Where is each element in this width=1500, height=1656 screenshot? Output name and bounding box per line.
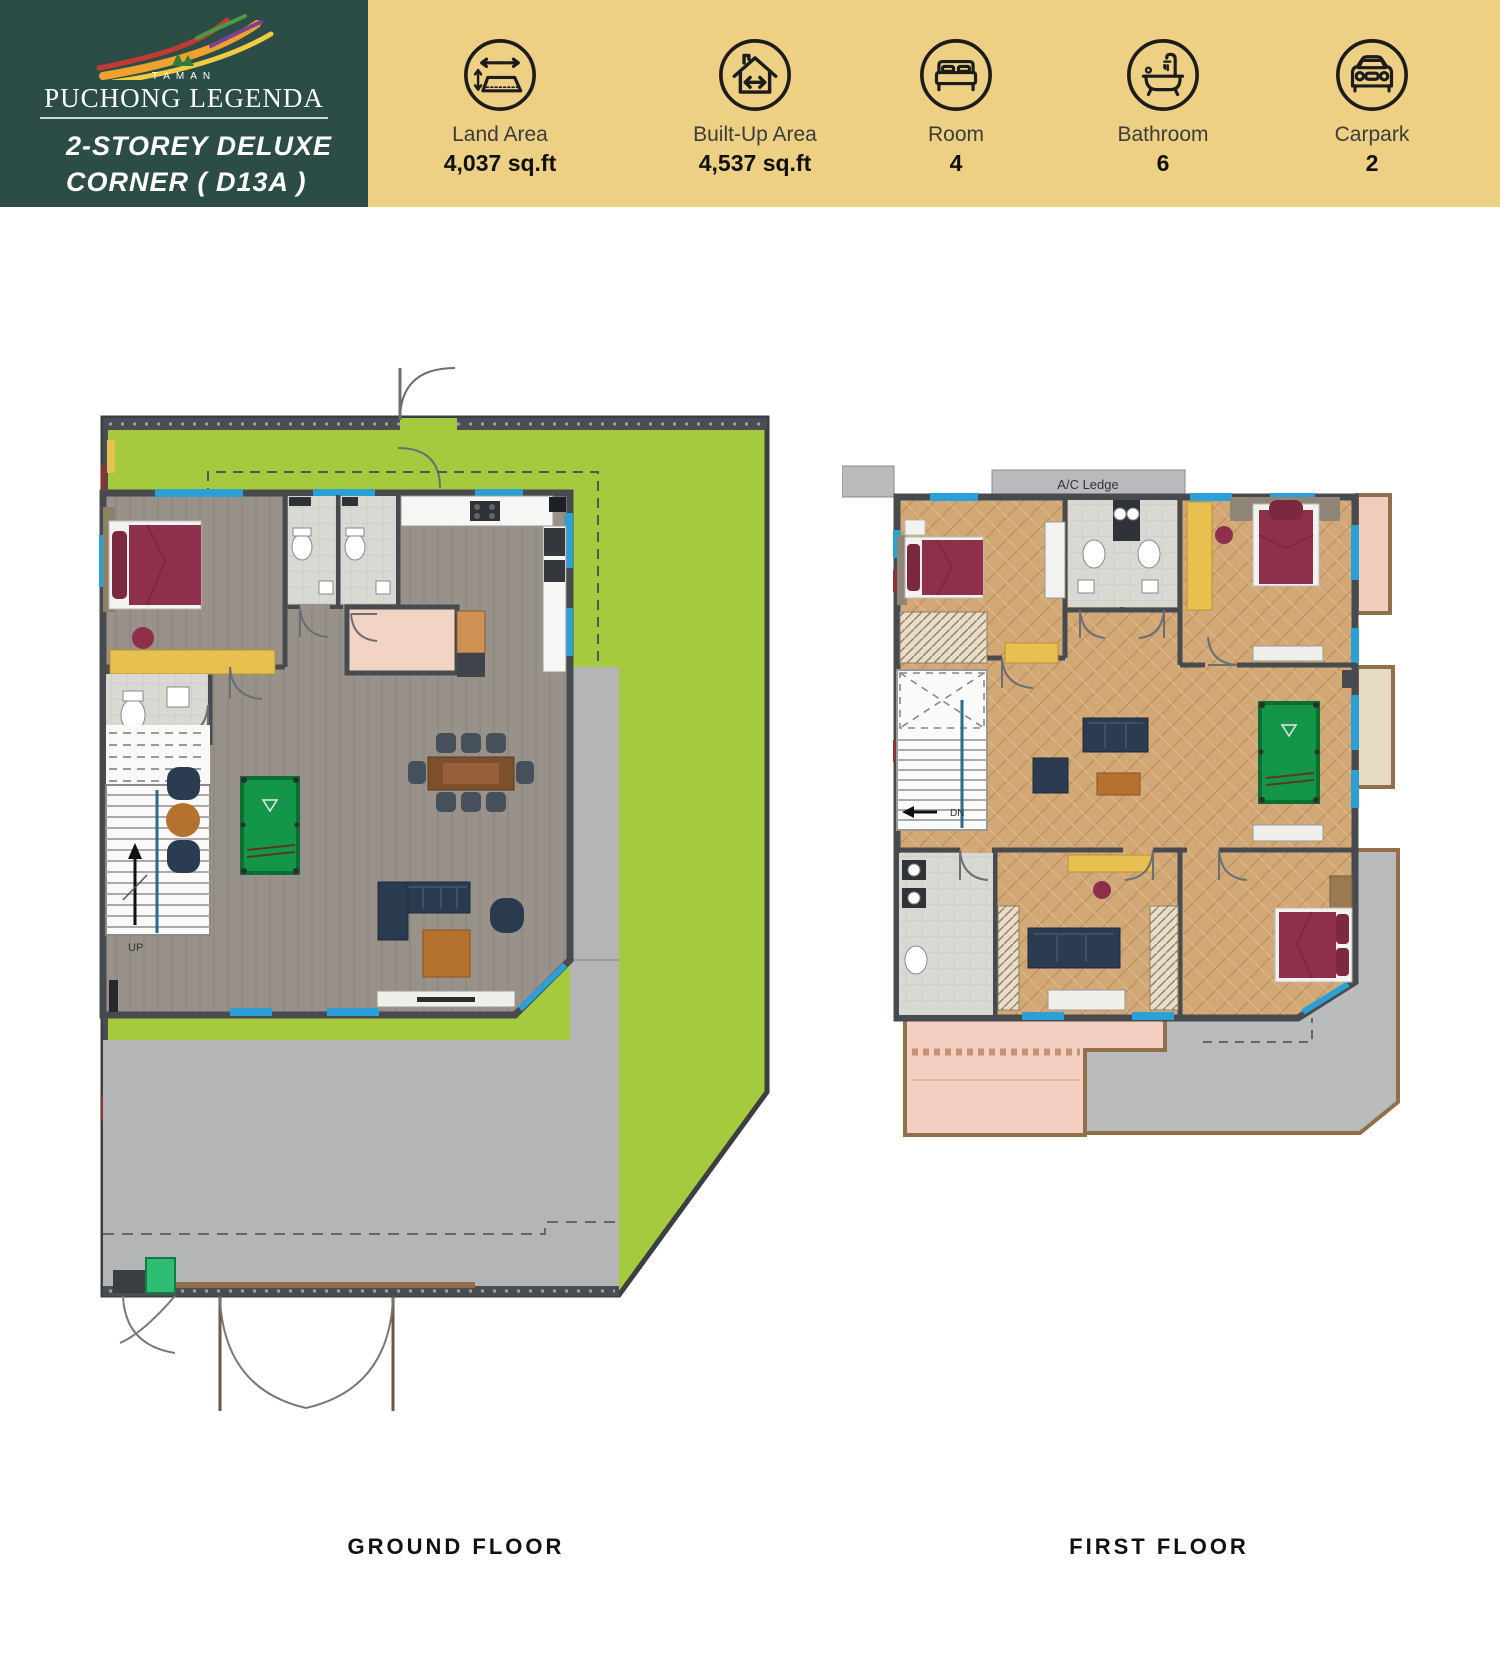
stat-label: Room [868, 123, 1044, 147]
side-door [109, 980, 118, 1012]
console-table [1068, 855, 1153, 872]
side-ledge [1357, 495, 1390, 613]
armchair [167, 840, 200, 873]
wardrobe [1187, 502, 1212, 610]
side-ledge [1357, 667, 1393, 787]
tv-console [1253, 825, 1323, 841]
stair-direction-label: UP [128, 942, 143, 954]
gate-post [107, 440, 115, 473]
gate-frame [220, 1296, 393, 1411]
stat-value: 6 [1075, 150, 1251, 177]
ac-ledge-small [842, 466, 894, 497]
tv-console [1253, 646, 1323, 661]
stair-flight-upper [900, 612, 987, 663]
ground-floor-plan: UP [95, 360, 805, 1440]
pool-table [241, 777, 300, 874]
driveway [103, 1040, 619, 1292]
first-floor-plan: A/C Ledge [842, 440, 1402, 1140]
ground-floor-caption: GROUND FLOOR [256, 1534, 656, 1560]
wicket-gate [146, 1258, 175, 1293]
stove [470, 501, 500, 521]
double-gate-arcs [220, 1298, 393, 1408]
gate-door-arc [400, 368, 455, 420]
unit-title: 2-STOREY DELUXE CORNER ( D13A ) [66, 128, 332, 200]
round-table [166, 803, 200, 837]
stair-direction-label: DN [950, 808, 964, 819]
ac-ledge-label: A/C Ledge [1057, 477, 1118, 492]
car-icon [1333, 36, 1411, 119]
armchair [167, 767, 200, 800]
stat-label: Built-Up Area [667, 123, 843, 147]
logo-tagline: TAMAN [0, 71, 368, 82]
bathtub-icon [1124, 36, 1202, 119]
armchair [490, 898, 524, 933]
logo-brand: PUCHONG LEGENDA [40, 83, 328, 119]
logo-swirl-icon [69, 6, 299, 80]
side-gate-opening [400, 418, 457, 431]
stat-built-up-area: Built-Up Area 4,537 sq.ft [667, 36, 843, 177]
unit-title-line2: CORNER ( D13A ) [66, 164, 332, 200]
developer-logo: TAMAN PUCHONG LEGENDA [0, 6, 368, 119]
pouf [132, 627, 154, 649]
stat-value: 4 [868, 150, 1044, 177]
stat-bathroom: Bathroom 6 [1075, 36, 1251, 177]
vanity [1113, 500, 1140, 541]
stat-land-area: Land Area 4,037 sq.ft [412, 36, 588, 177]
unit-title-line1: 2-STOREY DELUXE [66, 128, 332, 164]
stat-value: 2 [1284, 150, 1460, 177]
stat-value: 4,037 sq.ft [412, 150, 588, 177]
cabinet [457, 653, 485, 677]
first-floor-caption: FIRST FLOOR [959, 1534, 1359, 1560]
utility-room [347, 607, 457, 673]
brand-panel: TAMAN PUCHONG LEGENDA 2-STOREY DELUXE CO… [0, 0, 368, 207]
land-area-icon [461, 36, 539, 119]
stat-label: Land Area [412, 123, 588, 147]
fridge [544, 528, 565, 556]
console-table [1005, 643, 1058, 663]
stat-room: Room 4 [868, 36, 1044, 177]
stat-label: Carpark [1284, 123, 1460, 147]
brochure-page: TAMAN PUCHONG LEGENDA 2-STOREY DELUXE CO… [0, 0, 1500, 1656]
wicket-arcs [120, 1296, 175, 1353]
side-apron [570, 667, 619, 1040]
stat-label: Bathroom [1075, 123, 1251, 147]
stat-carpark: Carpark 2 [1284, 36, 1460, 177]
bed-icon [917, 36, 995, 119]
kitchen-sink [549, 497, 566, 512]
pool-table [1259, 702, 1320, 803]
stat-value: 4,537 sq.ft [667, 150, 843, 177]
ottoman [423, 930, 470, 977]
main-gate-bar [175, 1282, 475, 1288]
cabinet [457, 611, 485, 653]
tv-console [1048, 990, 1125, 1010]
built-up-area-icon [716, 36, 794, 119]
console-table [110, 650, 275, 674]
